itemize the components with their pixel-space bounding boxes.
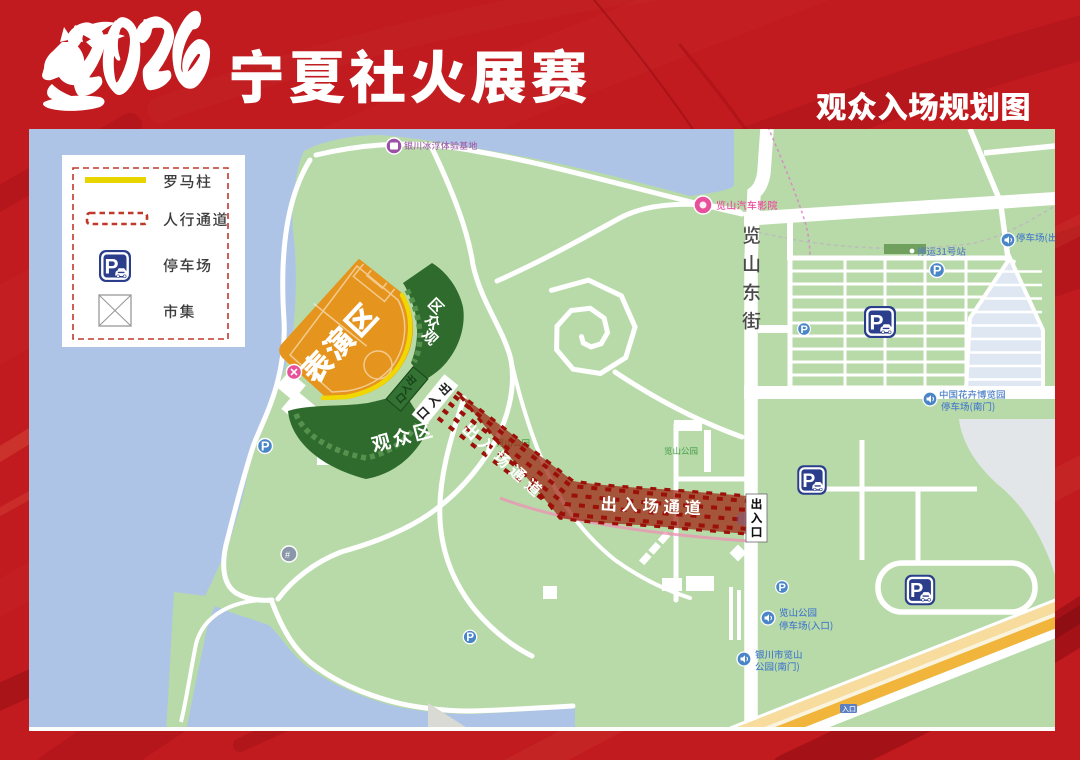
svg-text:#: # bbox=[285, 550, 290, 560]
